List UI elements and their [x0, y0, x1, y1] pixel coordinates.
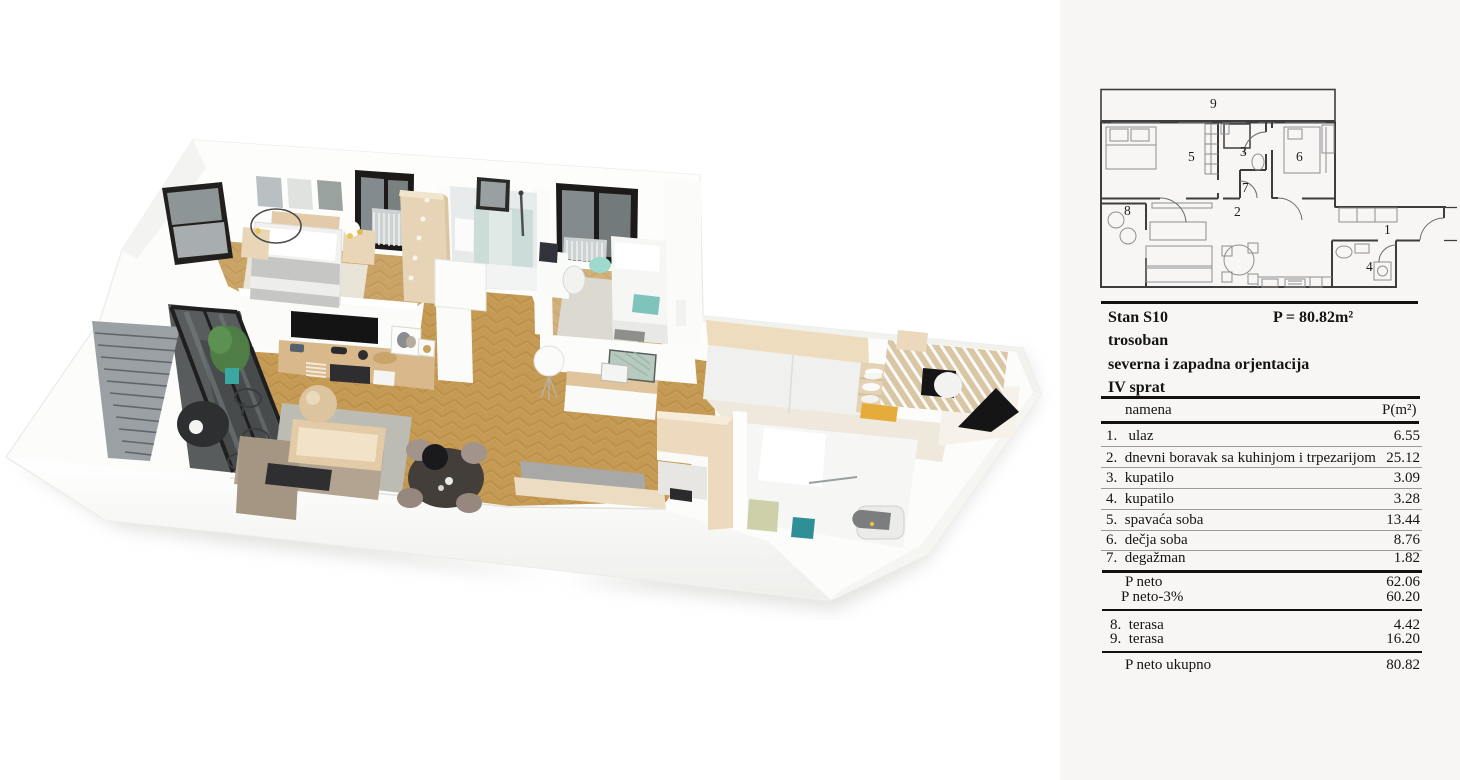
svg-text:4: 4	[1366, 259, 1373, 274]
svg-text:2: 2	[1234, 204, 1241, 219]
svg-text:8: 8	[1124, 203, 1131, 218]
svg-text:6: 6	[1296, 149, 1303, 164]
svg-text:3: 3	[1240, 144, 1247, 159]
svg-text:9: 9	[1210, 96, 1217, 111]
svg-text:7: 7	[1242, 180, 1249, 195]
svg-text:1: 1	[1384, 222, 1391, 237]
svg-text:5: 5	[1188, 149, 1195, 164]
